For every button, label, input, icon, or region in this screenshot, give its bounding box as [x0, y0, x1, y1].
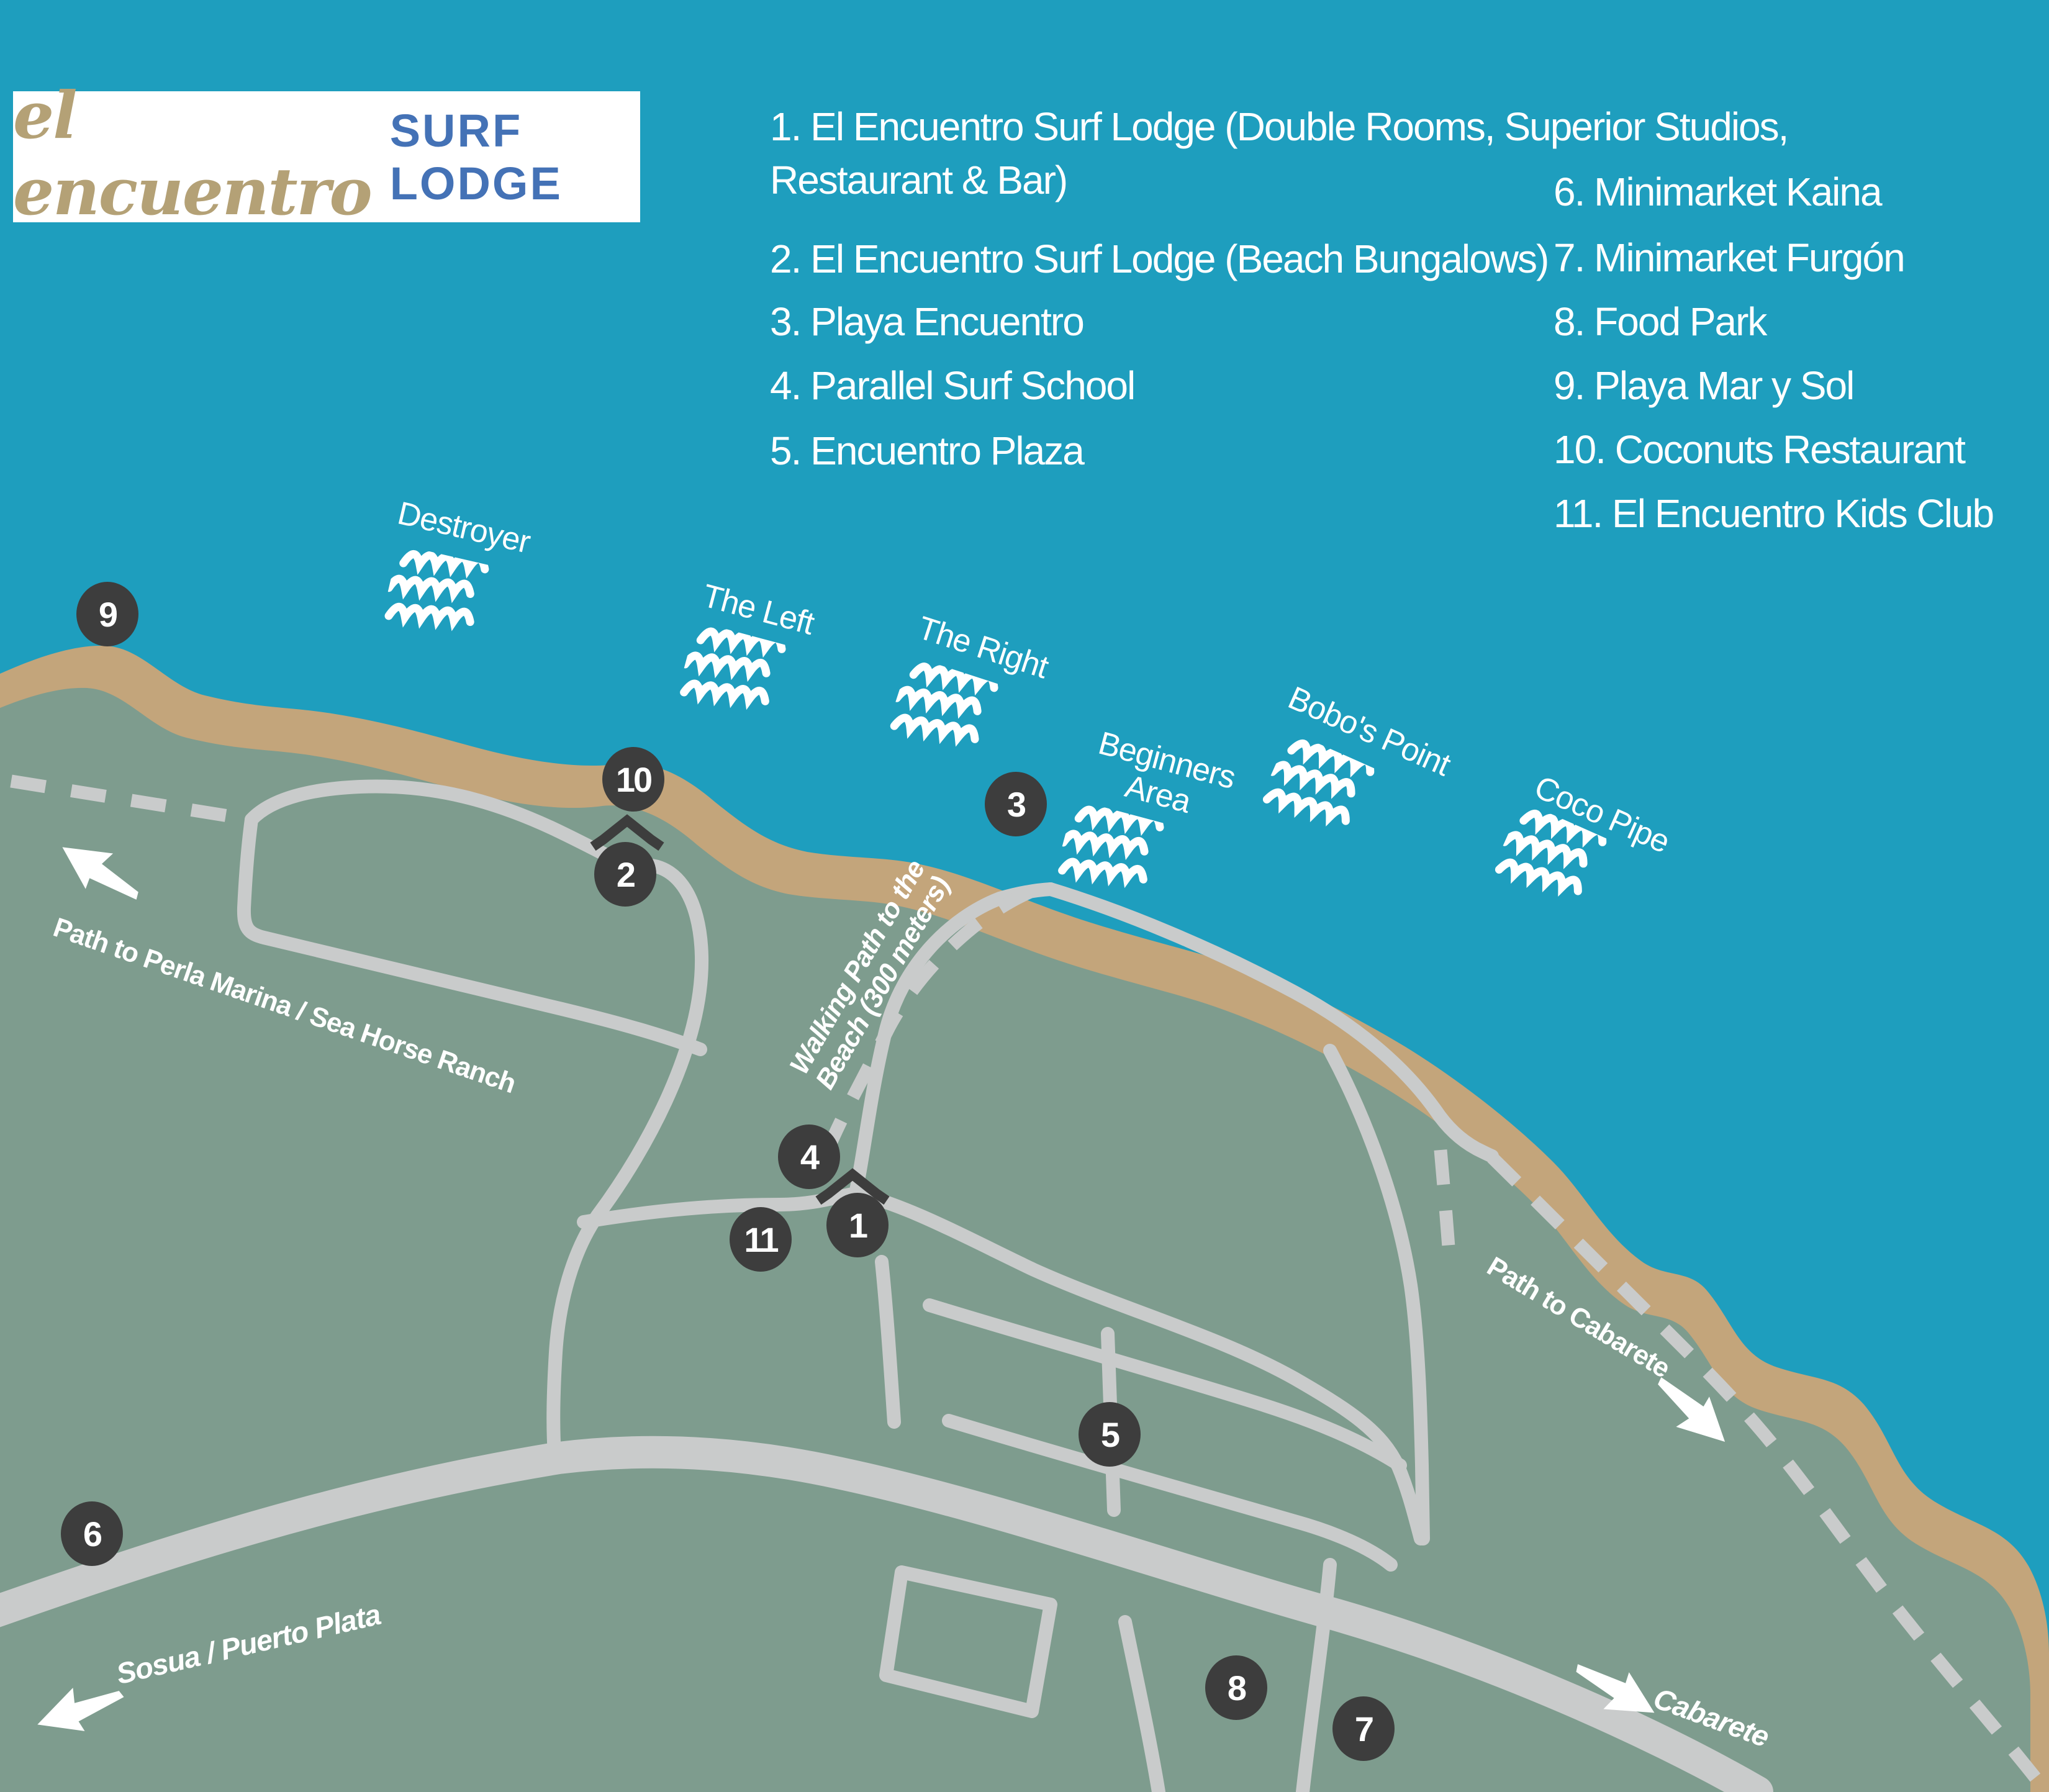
path-label-cabarete: Cabarete — [1650, 1683, 1773, 1752]
path-label-path-cabarete: Path to Cabarete — [1482, 1252, 1675, 1384]
map-marker: 10 — [602, 747, 664, 812]
legend-item: 6. Minimarket Kaina — [1554, 165, 1881, 219]
map-marker: 9 — [76, 582, 138, 646]
path-label-perla: Path to Perla Marina / Sea Horse Ranch — [50, 913, 520, 1100]
wave-icon — [378, 545, 538, 671]
direction-arrow-sosua — [27, 1667, 132, 1748]
direction-arrow-cabarete — [1561, 1645, 1668, 1738]
map-marker: 3 — [985, 772, 1047, 836]
legend-item: 9. Playa Mar y Sol — [1554, 359, 1853, 412]
path-label-walking: Walking Path to the Beach (300 meters) — [784, 856, 956, 1094]
map-marker: 8 — [1205, 1655, 1267, 1720]
legend-item: 8. Food Park — [1554, 295, 1766, 348]
legend-item: 7. Minimarket Furgón — [1554, 231, 1904, 284]
legend-item: 10. Coconuts Restaurant — [1554, 423, 1965, 476]
legend-item: 4. Parallel Surf School — [770, 359, 1134, 412]
legend-item: 3. Playa Encuentro — [770, 295, 1083, 348]
map-overlay: el encuentro SURF LODGE 1. El Encuentro … — [0, 0, 2049, 1792]
map-marker: 1 — [826, 1193, 889, 1257]
map-marker: 4 — [778, 1125, 840, 1189]
map-marker: 11 — [730, 1207, 792, 1272]
legend-item: 5. Encuentro Plaza — [770, 424, 1083, 477]
map-marker: 2 — [594, 842, 656, 907]
legend-item: 11. El Encuentro Kids Club — [1554, 487, 1993, 540]
map-marker: 7 — [1332, 1696, 1395, 1761]
wave-icon — [672, 621, 835, 751]
map-marker: 5 — [1079, 1402, 1141, 1467]
map-marker: 6 — [61, 1501, 123, 1566]
map-canvas: el encuentro SURF LODGE 1. El Encuentro … — [0, 0, 2049, 1792]
logo-box: el encuentro SURF LODGE — [13, 91, 640, 222]
logo-script: el encuentro — [13, 77, 371, 230]
path-label-sosua: Sosua / Puerto Plata — [114, 1600, 383, 1690]
logo-wordmark: SURF LODGE — [390, 104, 640, 210]
direction-arrow-perla — [48, 823, 155, 918]
legend-item: 2. El Encuentro Surf Lodge (Beach Bungal… — [770, 232, 1548, 286]
